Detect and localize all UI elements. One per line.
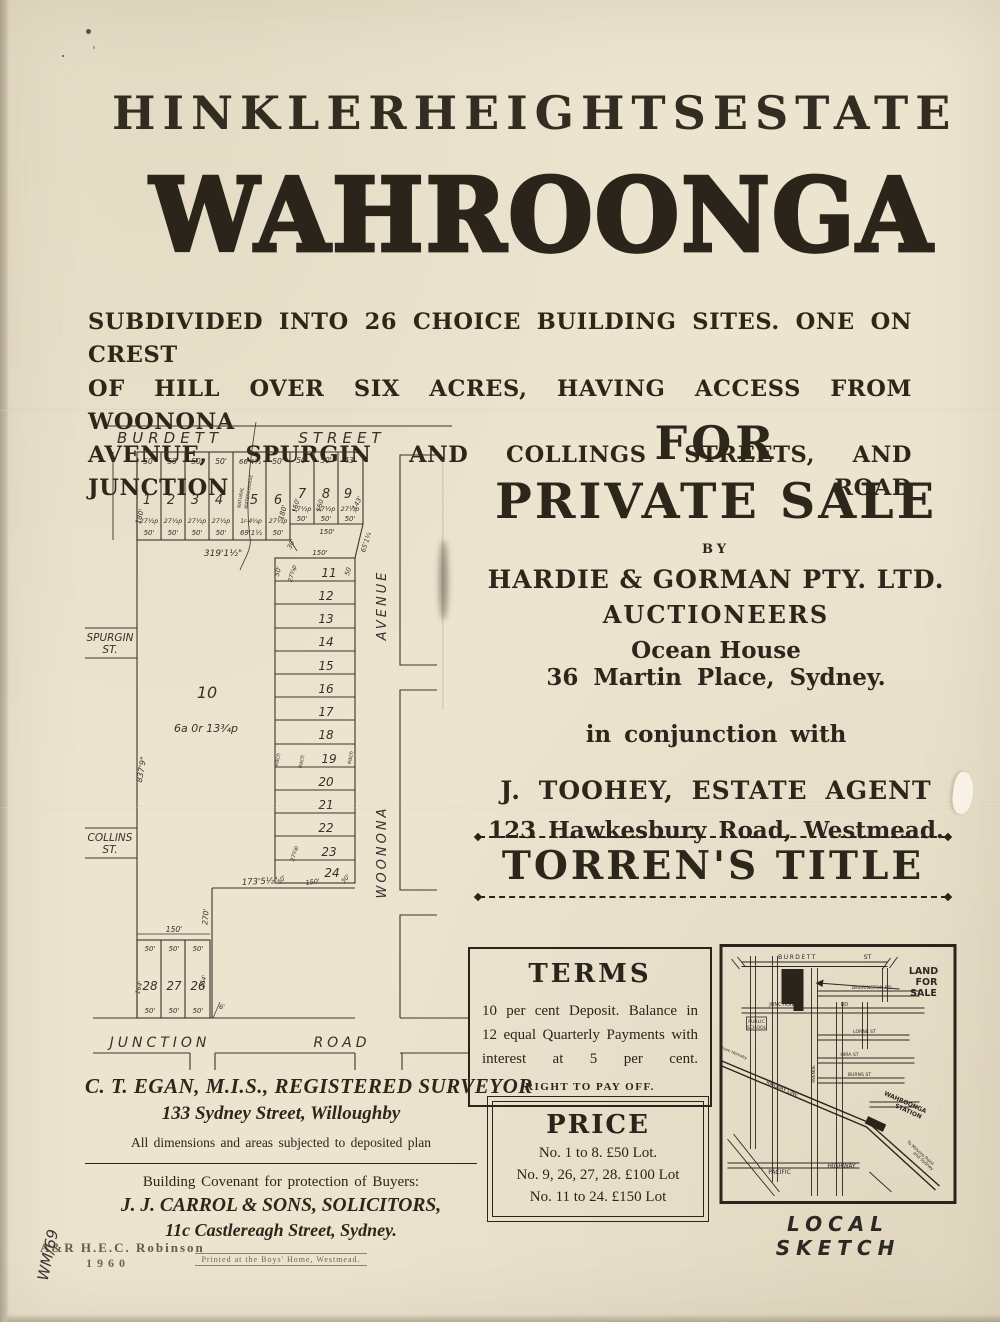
torrens-title-banner: TORREN'S TITLE — [477, 836, 949, 898]
solicitor-firm: J. J. CARROL & SONS, SOLICITORS, — [85, 1195, 477, 1217]
footer-rule — [85, 1163, 477, 1164]
price-box: PRICE No. 1 to 8. £50 Lot. No. 9, 26, 27… — [487, 1096, 709, 1222]
sale-column: FOR PRIVATE SALE BY HARDIE & GORMAN PTY.… — [470, 416, 962, 844]
map-label: 27½p — [188, 517, 207, 525]
map-label: 12 — [318, 589, 333, 603]
price-line: No. 11 to 24. £150 Lot — [497, 1189, 699, 1206]
map-label: 18 — [318, 728, 334, 742]
estate-kicker: HINKLER HEIGHTS ESTATE — [112, 86, 888, 140]
surveyor-note: All dimensions and areas subjected to de… — [85, 1135, 477, 1151]
price-line: No. 9, 26, 27, 28. £100 Lot — [497, 1167, 699, 1184]
terms-body: 10 per cent Deposit. Balance in 12 equal… — [482, 999, 698, 1071]
map-label: 65'1¼ — [359, 531, 373, 554]
map-label: 270' — [200, 908, 210, 925]
map-label: AVENUE — [375, 570, 390, 642]
map-label: PUBLIC — [748, 1019, 764, 1025]
fold-crease-horizontal — [0, 806, 1000, 809]
subtitle-line: SUBDIVIDED INTO 26 CHOICE BUILDING SITES… — [88, 306, 912, 373]
map-label: 2 — [167, 493, 175, 508]
auctioneer-role: AUCTIONEERS — [470, 600, 962, 629]
map-label: SPURGIN — [86, 632, 133, 644]
map-label: 50' — [297, 515, 308, 523]
map-label: 9 — [344, 487, 352, 502]
map-label: To Milsons Point — [905, 1139, 936, 1167]
map-label: 50' — [191, 457, 203, 466]
auctioneer-address-line1: Ocean House — [470, 637, 962, 664]
map-label: 1r-4¾p — [240, 518, 262, 525]
map-label: SCHOOL — [747, 1025, 767, 1031]
map-label: 1 — [143, 493, 151, 508]
kicker-word: ESTATE — [713, 86, 957, 140]
sketch-caption: LOCAL SKETCH — [719, 1212, 957, 1260]
map-label: 50' — [192, 529, 203, 537]
map-label: 27½p — [293, 505, 312, 513]
map-label: 10 — [197, 683, 217, 702]
subdivision-plan-map: BURDETTSTREETSPURGINST.COLLINSST.JUNCTIO… — [80, 420, 470, 1070]
surveyor-name: C. T. EGAN, M.I.S., REGISTERED SURVEYOR — [85, 1074, 477, 1099]
map-label: 319'1½" — [204, 549, 242, 559]
sketch-railway — [720, 1060, 940, 1190]
map-label: JUNCTION — [768, 1002, 794, 1008]
map-label: WARRINGTON RD — [851, 985, 892, 991]
map-label: COLLINS — [88, 832, 133, 844]
dashed-rule-bottom — [479, 896, 947, 898]
map-label: 50' — [145, 945, 156, 953]
map-label: ROAD — [313, 1035, 370, 1051]
map-label: BURNS ST — [848, 1072, 871, 1078]
kicker-word: HEIGHTS — [414, 86, 713, 140]
map-label: RD — [841, 1002, 848, 1008]
map-label: 50' — [215, 457, 227, 466]
map-label: ST. — [102, 644, 117, 656]
map-label: 27½p — [269, 517, 288, 525]
estate-agent-name: J. TOOHEY, ESTATE AGENT — [470, 776, 962, 805]
map-label: HIGHWAY — [827, 1163, 856, 1170]
map-label: 16 — [318, 682, 334, 696]
map-label: 27½p — [164, 517, 183, 525]
map-label: 4 — [215, 493, 223, 508]
main-title: WAHROONGA — [150, 156, 850, 275]
map-label: 24 — [324, 866, 339, 880]
map-label: 50' — [296, 456, 308, 465]
map-label: 50 — [343, 566, 353, 576]
map-label: PACIFIC — [768, 1169, 791, 1176]
map-label: 150' — [312, 549, 327, 557]
map-label: ST. — [102, 844, 117, 856]
map-label: SALE — [910, 988, 937, 999]
map-label: 14 — [318, 635, 333, 649]
map-label: 21 — [318, 798, 333, 812]
map-label: 50' — [272, 457, 284, 466]
map-label: 66'4½ — [239, 458, 261, 466]
map-label: 19 — [321, 752, 336, 766]
map-label: 50' — [320, 456, 332, 465]
map-label: 27½p — [341, 505, 360, 513]
kicker-word: HINKLER — [112, 86, 414, 140]
printer-note: Printed at the Boys' Home, Westmead. — [195, 1253, 366, 1266]
map-label: 13 — [318, 612, 333, 626]
publisher-stamp: A&R H.E.C. Robinson — [40, 1240, 205, 1256]
map-label: 28 — [142, 979, 158, 993]
map-label: 50' — [273, 529, 284, 537]
map-label: BURDETT — [117, 429, 223, 447]
paper-speck — [62, 55, 64, 57]
paper-speck — [93, 46, 95, 49]
terms-heading: TERMS — [482, 959, 698, 989]
map-label: JUNCTION — [107, 1035, 211, 1051]
local-sketch-map: BURDETTSTLANDFORSALEWARRINGTON RDJUNCTIO… — [719, 944, 957, 1204]
map-label: LAND — [909, 966, 938, 977]
plat-labels: BURDETTSTREETSPURGINST.COLLINSST.JUNCTIO… — [86, 429, 390, 1051]
price-line: No. 1 to 8. £50 Lot. — [497, 1145, 699, 1162]
map-label: 173'5½" — [242, 876, 279, 888]
map-label: 27¾p — [287, 564, 298, 583]
auctioneer-address-line2: 36 Martin Place, Sydney. — [470, 664, 962, 691]
map-label: 23 — [321, 845, 336, 859]
map-label: 17 — [318, 705, 334, 719]
covenant-intro: Building Covenant for protection of Buye… — [85, 1174, 477, 1191]
map-label: 43' — [344, 456, 356, 465]
by-label: BY — [470, 542, 962, 557]
map-label: 27½p — [212, 517, 231, 525]
dashed-rule-top — [479, 836, 947, 838]
fold-crease-horizontal — [0, 409, 1000, 412]
map-label: 11 — [321, 566, 336, 580]
map-label: RAILWAY LINE — [765, 1080, 799, 1099]
poster-page: HINKLER HEIGHTS ESTATE WAHROONGA SUBDIVI… — [0, 0, 1000, 1322]
map-label: 50' — [193, 945, 204, 953]
private-sale-heading: PRIVATE SALE — [470, 472, 962, 530]
map-label: AVENUE — [811, 1065, 817, 1083]
map-label: 50' — [321, 515, 332, 523]
map-label: 50' — [145, 1007, 156, 1015]
map-label: 22 — [318, 821, 333, 835]
map-label: 50' — [345, 515, 356, 523]
map-label: 150' — [305, 877, 320, 887]
map-label: 27½p — [317, 505, 336, 513]
map-label: 69'1½ — [240, 529, 262, 537]
map-label: STREET — [298, 429, 385, 447]
footer-left: C. T. EGAN, M.I.S., REGISTERED SURVEYOR … — [85, 1074, 477, 1267]
stamp-year: 1960 — [86, 1256, 130, 1271]
map-label: 15 — [318, 659, 333, 673]
map-label: 50' — [169, 1007, 180, 1015]
map-label: 50' — [169, 945, 180, 953]
surveyor-address: 133 Sydney Street, Willoughby — [85, 1103, 477, 1125]
map-label: 50' — [144, 529, 155, 537]
map-label: From Hornsby — [720, 1045, 748, 1061]
map-label: 50' — [143, 457, 155, 466]
price-box-inner: PRICE No. 1 to 8. £50 Lot. No. 9, 26, 27… — [492, 1101, 704, 1217]
for-heading: FOR — [470, 416, 962, 470]
map-label: 164' — [198, 974, 208, 989]
map-label: 50' — [193, 1007, 204, 1015]
map-label: 27½p — [140, 517, 159, 525]
price-heading: PRICE — [497, 1110, 699, 1140]
map-label: 150' — [166, 925, 182, 934]
map-label: 150' — [319, 528, 334, 536]
map-label: WOONONA — [375, 806, 390, 899]
map-label: 8 — [322, 487, 330, 502]
paper-speck — [86, 29, 91, 34]
map-label: each — [346, 750, 355, 765]
map-label: ST — [864, 954, 872, 961]
map-label: FOR — [916, 977, 939, 988]
map-label: 50' — [167, 457, 179, 466]
map-label: BURDETT — [778, 954, 817, 961]
map-label: 20 — [318, 775, 334, 789]
sketch-labels: BURDETTSTLANDFORSALEWARRINGTON RDJUNCTIO… — [720, 954, 938, 1176]
map-label: HIRA ST — [840, 1052, 858, 1058]
map-label: 6a 0r 13¾p — [174, 722, 238, 735]
map-label: 50' — [168, 529, 179, 537]
solicitor-address: 11c Castlereagh Street, Sydney. — [85, 1220, 477, 1241]
map-label: LORNE ST — [853, 1029, 876, 1035]
map-label: 50' — [216, 529, 227, 537]
auctioneer-name: HARDIE & GORMAN PTY. LTD. — [470, 565, 962, 594]
map-label: 3 — [191, 493, 199, 508]
ink-smudge — [439, 540, 448, 620]
map-label: 27 — [166, 979, 182, 993]
conjunction-text: in conjunction with — [470, 721, 962, 748]
torrens-title-text: TORREN'S TITLE — [477, 838, 949, 896]
map-label: 50' — [273, 565, 283, 577]
map-label: 6' — [219, 1003, 225, 1011]
